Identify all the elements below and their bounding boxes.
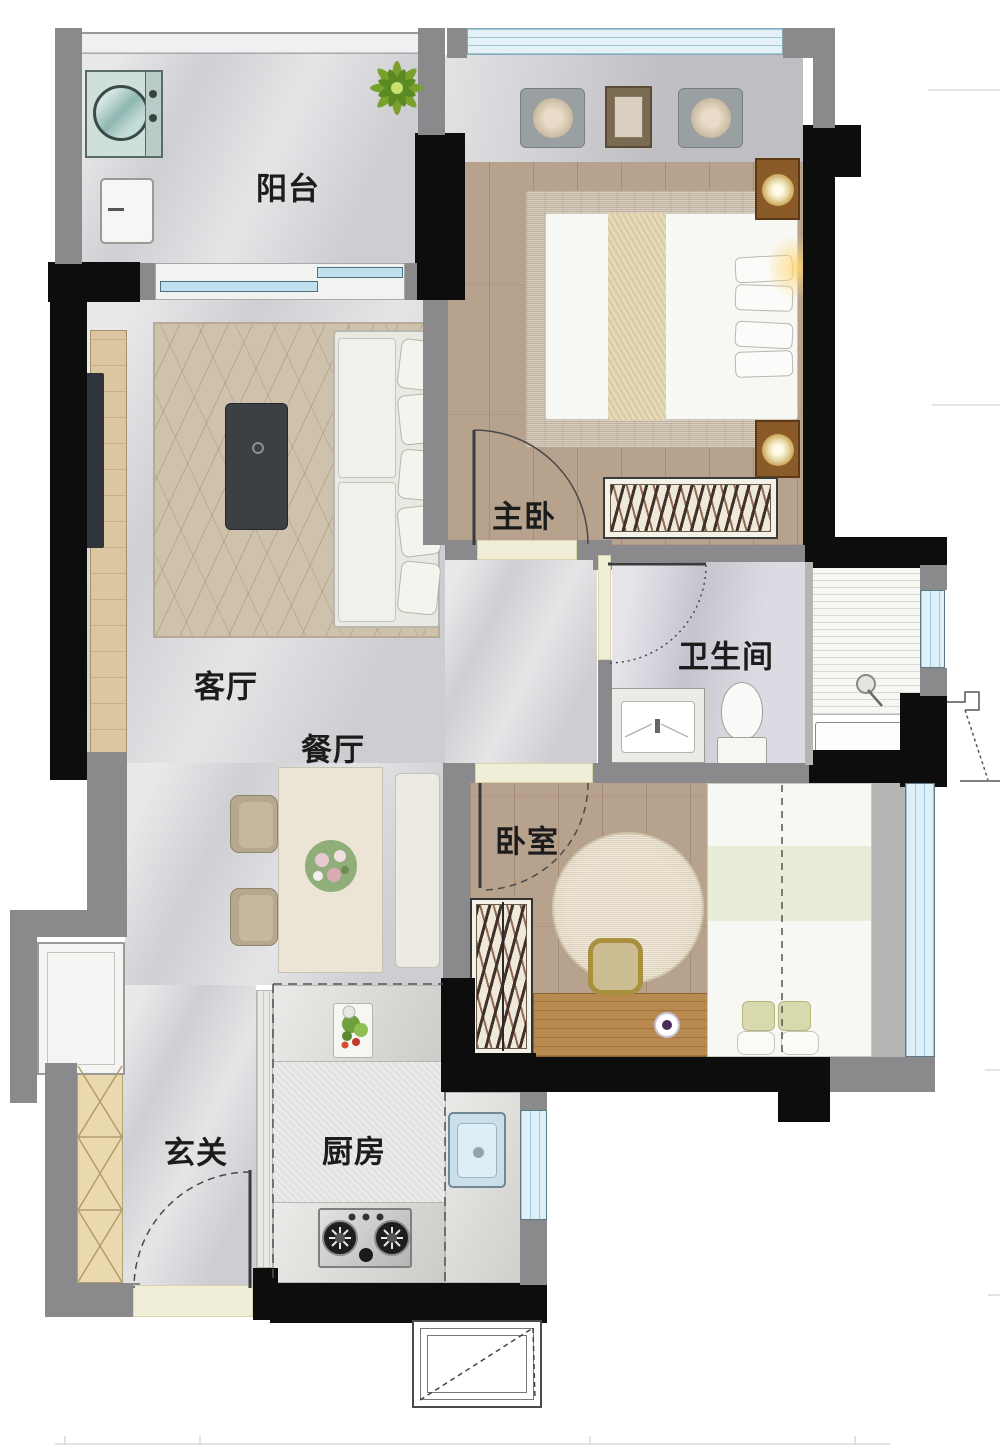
wall-segment <box>813 28 835 128</box>
chair-seat <box>239 802 273 848</box>
floorplan-canvas: 阳台 主卧 客厅 餐厅 卫生间 卧室 厨房 玄关 <box>0 0 1000 1448</box>
washer-knob <box>149 90 157 98</box>
room-label-bathroom: 卫生间 <box>678 632 774 677</box>
bathroom-shelf <box>815 722 905 753</box>
toilet-bowl <box>721 682 763 740</box>
wall-segment <box>45 1063 77 1317</box>
bed-pillow-white <box>737 1031 775 1055</box>
desk-chair <box>588 938 643 995</box>
sliding-pane <box>160 281 318 292</box>
wall-art-photo <box>614 96 643 138</box>
bed-pillow-white <box>781 1031 819 1055</box>
pillow-medallion <box>533 98 573 138</box>
wall-segment <box>783 28 813 58</box>
balcony-sink-faucet <box>108 208 124 211</box>
wall-segment <box>920 565 947 590</box>
coffee-table <box>225 403 288 530</box>
exterior-window-bay <box>412 1320 542 1408</box>
balcony-railing <box>82 32 418 54</box>
coffee-table-decor <box>252 442 264 454</box>
decor-pillow-art <box>678 88 743 148</box>
bench-weave <box>610 484 771 532</box>
bed-pillow <box>735 350 794 378</box>
chair-seat <box>239 895 273 941</box>
kitchen-sink <box>448 1112 506 1188</box>
wall-segment <box>443 763 475 783</box>
washing-machine-drum <box>93 85 149 141</box>
bed-pillow-olive <box>742 1001 775 1031</box>
wall-segment <box>778 1092 830 1122</box>
wall-segment <box>45 1283 140 1317</box>
wall-segment <box>805 562 813 765</box>
bed-pillow <box>734 321 793 350</box>
hallway-floor <box>445 558 597 763</box>
bed-blanket <box>708 846 871 921</box>
room-label-entry: 玄关 <box>164 1128 228 1173</box>
wall-segment <box>270 1283 547 1323</box>
wall-segment <box>423 300 448 545</box>
cutting-board <box>333 1003 373 1058</box>
bedroom-bed <box>707 783 872 1057</box>
wall-segment <box>872 783 905 1057</box>
door-threshold <box>475 763 593 783</box>
shower-head <box>856 674 876 694</box>
bed-end-bench <box>603 477 778 539</box>
room-label-dining-room: 餐厅 <box>301 725 365 770</box>
table-lamp <box>762 174 794 206</box>
wall-segment <box>803 170 835 545</box>
wall-segment <box>253 1268 278 1320</box>
master-bed <box>545 213 798 420</box>
wall-segment <box>48 262 140 302</box>
wall-segment <box>443 783 470 978</box>
window-frame-line <box>427 1335 527 1393</box>
room-label-living-room: 客厅 <box>194 662 258 707</box>
room-label-bedroom: 卧室 <box>495 817 559 862</box>
toilet <box>717 680 767 768</box>
wall-segment <box>445 540 477 560</box>
wall-segment <box>10 937 37 1103</box>
wall-segment <box>403 263 417 300</box>
wall-segment <box>520 1092 547 1110</box>
table-lamp <box>762 434 794 466</box>
sink-drain <box>473 1147 484 1158</box>
wall-segment <box>10 910 127 937</box>
bedroom-wardrobe <box>470 898 533 1055</box>
sofa-seat-cushion <box>338 338 396 478</box>
wall-segment <box>805 537 947 568</box>
wall-segment <box>593 763 809 783</box>
stove <box>318 1208 412 1268</box>
wall-segment <box>441 1057 831 1092</box>
sofa-seat-cushion <box>338 482 396 622</box>
wall-segment <box>830 1057 935 1092</box>
dining-chair <box>230 888 278 946</box>
vanity-faucet <box>655 719 660 733</box>
room-label-kitchen: 厨房 <box>322 1127 386 1172</box>
wardrobe-divider <box>502 902 504 1051</box>
master-bedroom-window <box>467 28 783 55</box>
toilet-tank <box>717 737 767 765</box>
utility-panel-inner <box>47 952 115 1065</box>
utility-panel <box>37 942 125 1075</box>
door-threshold <box>477 540 577 560</box>
bedroom-window <box>905 783 935 1057</box>
bathroom-vanity <box>610 688 705 763</box>
wall-segment <box>520 1220 547 1285</box>
bedroom-desk <box>533 993 708 1057</box>
sliding-pane <box>317 267 403 278</box>
shower-window <box>920 590 945 668</box>
wall-segment <box>612 545 805 562</box>
sliding-door-divider <box>256 990 273 1268</box>
wall-segment <box>920 668 947 696</box>
dining-bench <box>395 773 440 968</box>
door-threshold <box>598 555 611 660</box>
dining-table <box>278 767 383 973</box>
wall-segment <box>415 133 465 300</box>
wall-segment <box>55 28 82 264</box>
washer-knob <box>149 114 157 122</box>
nightstand <box>755 158 800 220</box>
wall-segment <box>447 28 467 58</box>
washing-machine <box>85 70 163 158</box>
decor-pillow-art <box>520 88 585 148</box>
wall-segment <box>50 300 87 780</box>
sofa-back-pillow <box>396 560 441 616</box>
bed-pillow-olive <box>778 1001 811 1031</box>
tv <box>84 373 104 548</box>
dining-chair <box>230 795 278 853</box>
wall-segment <box>808 750 947 783</box>
wall-art-frame <box>605 86 652 148</box>
balcony-sink <box>100 178 154 244</box>
pillow-medallion <box>691 98 731 138</box>
desk-cup <box>654 1012 680 1038</box>
nightstand <box>755 420 800 478</box>
room-label-master-bedroom: 主卧 <box>492 492 556 537</box>
master-bed-runner <box>608 213 666 420</box>
room-label-balcony: 阳台 <box>256 164 320 209</box>
door-threshold <box>133 1285 253 1317</box>
kitchen-window <box>520 1110 547 1220</box>
wall-segment <box>418 28 445 135</box>
desk-cup-inner <box>662 1020 672 1030</box>
shoe-cabinet <box>77 1065 123 1283</box>
